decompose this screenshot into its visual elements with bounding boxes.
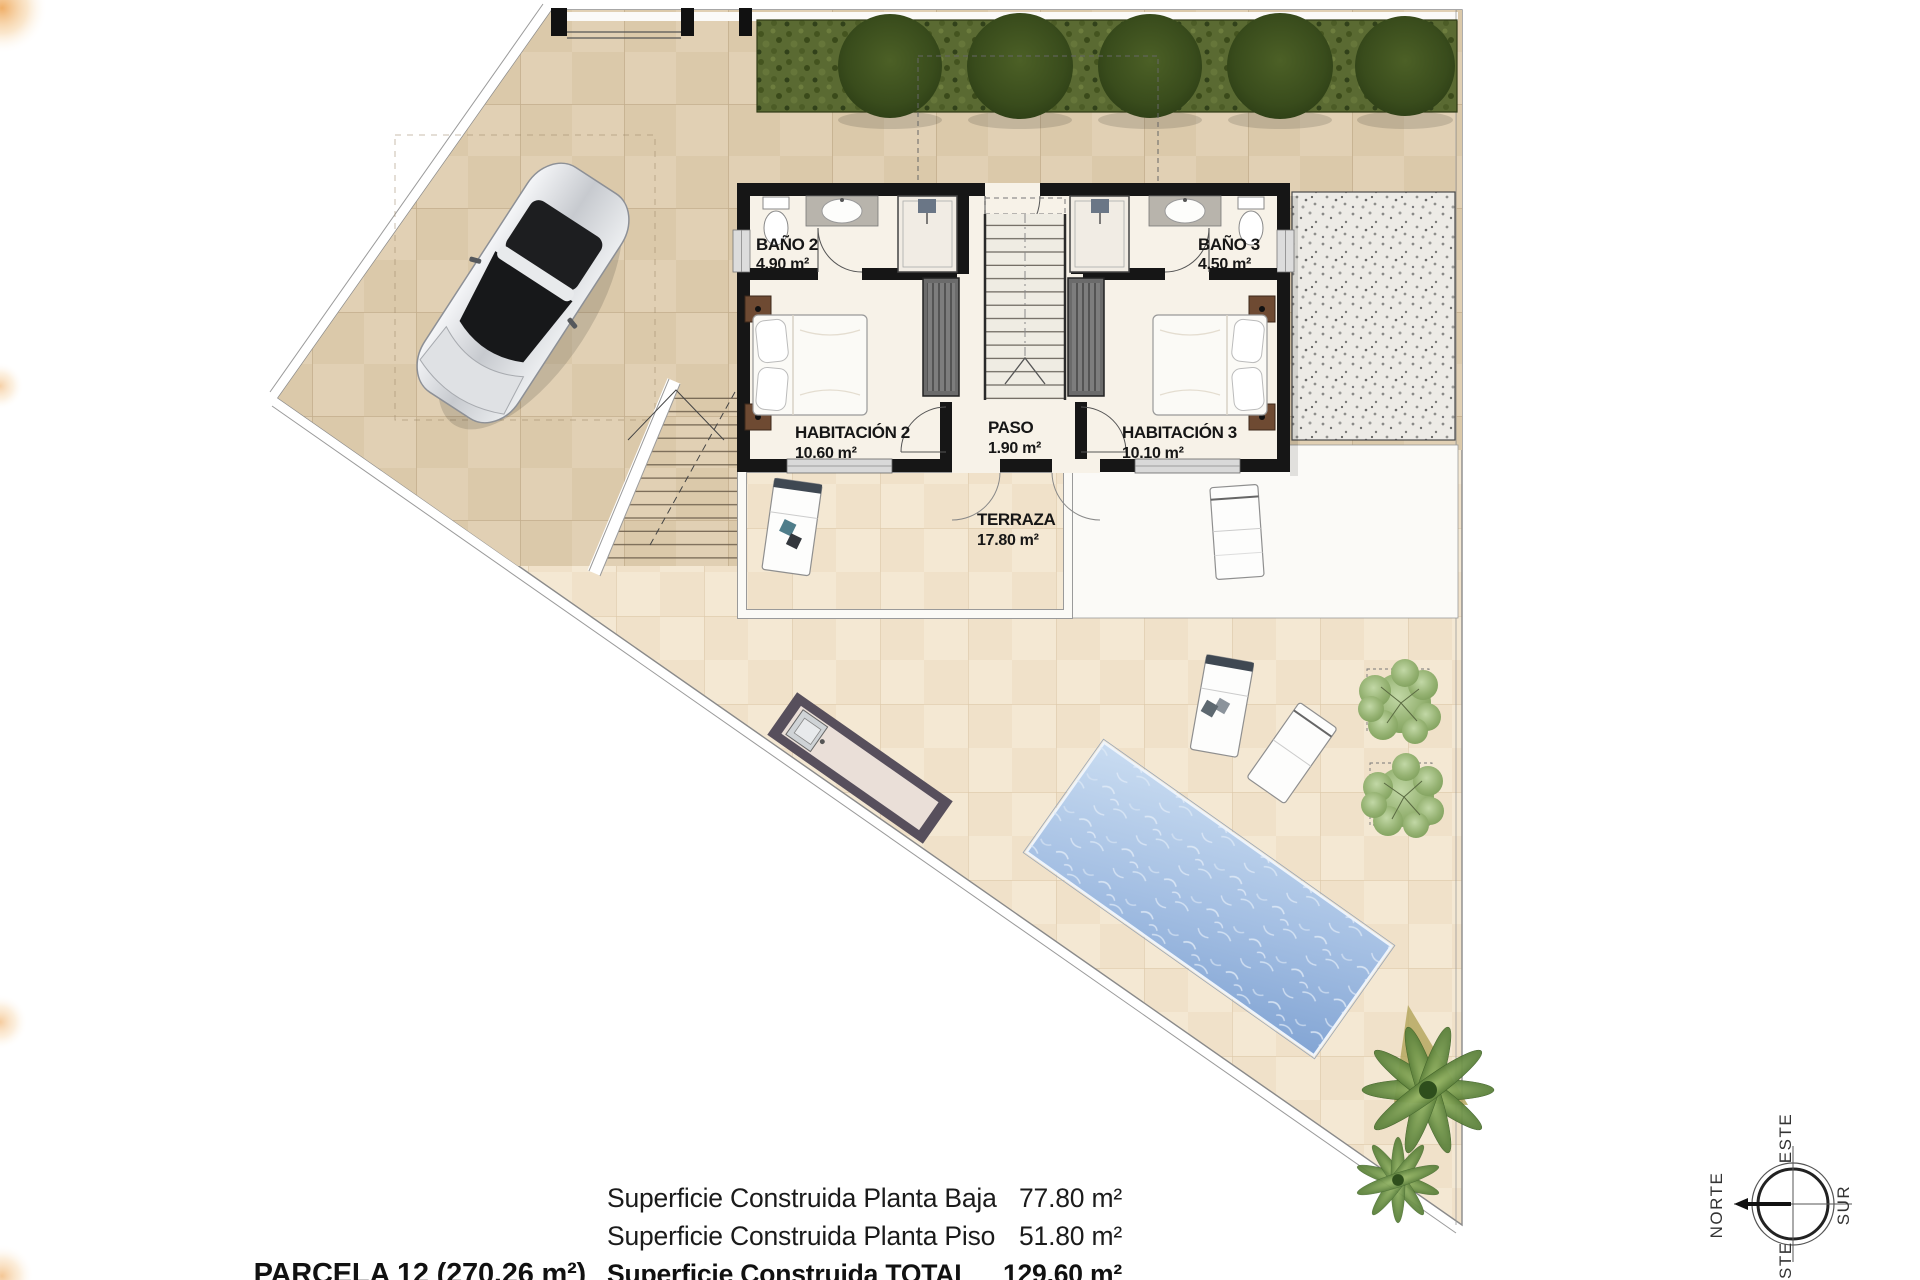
pillow bbox=[1231, 367, 1265, 411]
compass-rose: NORTE ESTE SUR OESTE bbox=[1707, 1113, 1853, 1280]
hedge-bush bbox=[1227, 13, 1333, 119]
bedroom3-furniture bbox=[1153, 296, 1275, 430]
compass-east-label: ESTE bbox=[1776, 1113, 1795, 1163]
building-first-floor: BAÑO 2 4.90 m² BAÑO 3 4.50 m² HABITACIÓN… bbox=[733, 183, 1298, 476]
room-area-paso: 1.90 m² bbox=[988, 440, 1041, 457]
interior-staircase bbox=[985, 198, 1065, 400]
sink bbox=[1165, 199, 1205, 223]
floor-plan-page: BAÑO 2 4.90 m² BAÑO 3 4.50 m² HABITACIÓN… bbox=[0, 0, 1920, 1280]
room-area-habitacion2: 10.60 m² bbox=[795, 445, 857, 462]
room-label-habitacion3: HABITACIÓN 3 bbox=[1122, 423, 1237, 442]
compass-south-label: SUR bbox=[1834, 1185, 1853, 1225]
pillow bbox=[755, 319, 789, 364]
gravel-area bbox=[1292, 192, 1455, 440]
room-label-habitacion2: HABITACIÓN 2 bbox=[795, 423, 910, 442]
north-arrowhead bbox=[1734, 1198, 1748, 1210]
sink bbox=[822, 199, 862, 223]
toilet-tank bbox=[1238, 197, 1264, 209]
summary-row-2-label: Superficie Construida Planta Piso bbox=[607, 1221, 995, 1251]
room-label-bano3: BAÑO 3 bbox=[1198, 234, 1260, 254]
partition-wall bbox=[957, 196, 969, 274]
wardrobe-right bbox=[1068, 278, 1104, 396]
gate-post bbox=[681, 8, 694, 36]
amber-glow bbox=[0, 0, 48, 54]
room-area-terraza: 17.80 m² bbox=[977, 532, 1039, 549]
hedge bbox=[757, 13, 1457, 129]
entrance-doorway bbox=[985, 183, 1040, 197]
compass-north-label: NORTE bbox=[1707, 1172, 1726, 1239]
amber-glow bbox=[0, 362, 24, 410]
bedroom2-furniture bbox=[745, 296, 867, 430]
summary-row-2-value: 51.80 m² bbox=[1019, 1221, 1122, 1251]
parcel-label: PARCELA 12 (270.26 m²) bbox=[254, 1258, 586, 1280]
gate-post bbox=[739, 8, 752, 36]
wardrobe-left bbox=[923, 278, 959, 396]
area-summary: Superficie Construida Planta Baja 77.80 … bbox=[254, 1183, 1123, 1280]
room-area-bano2: 4.90 m² bbox=[756, 256, 809, 273]
hedge-bush bbox=[967, 13, 1073, 119]
summary-row-3-label: Superficie Construida TOTAL bbox=[607, 1259, 970, 1280]
shower-head bbox=[918, 199, 936, 213]
room-area-bano3: 4.50 m² bbox=[1198, 256, 1251, 273]
hedge-bush bbox=[1098, 14, 1202, 118]
summary-row-1-value: 77.80 m² bbox=[1019, 1183, 1122, 1213]
amber-glow bbox=[0, 1244, 34, 1280]
room-label-bano2: BAÑO 2 bbox=[756, 234, 818, 254]
terrace-lounger-right bbox=[1210, 484, 1264, 579]
summary-row-1-label: Superficie Construida Planta Baja bbox=[607, 1183, 997, 1213]
terrace-doorway-left bbox=[952, 459, 1000, 473]
summary-row-3-value: 129.60 m² bbox=[1003, 1259, 1122, 1280]
amber-glow bbox=[0, 994, 28, 1050]
room-area-habitacion3: 10.10 m² bbox=[1122, 445, 1184, 462]
door-stub bbox=[940, 402, 952, 459]
room-label-terraza: TERRAZA bbox=[977, 510, 1056, 529]
hedge-bush bbox=[838, 14, 942, 118]
toilet-tank bbox=[763, 197, 789, 209]
floor-plan-canvas: BAÑO 2 4.90 m² BAÑO 3 4.50 m² HABITACIÓN… bbox=[0, 0, 1920, 1280]
door-stub bbox=[1075, 402, 1087, 459]
terrace-doorway-right bbox=[1052, 459, 1100, 473]
shower-head bbox=[1091, 199, 1109, 213]
hedge-bush bbox=[1355, 16, 1455, 116]
pillow bbox=[1231, 319, 1265, 364]
gate-post bbox=[551, 8, 567, 36]
room-label-paso: PASO bbox=[988, 418, 1033, 437]
pillow bbox=[755, 367, 789, 411]
page-edge-glows bbox=[0, 0, 48, 1280]
compass-west-label: OESTE bbox=[1776, 1241, 1795, 1280]
